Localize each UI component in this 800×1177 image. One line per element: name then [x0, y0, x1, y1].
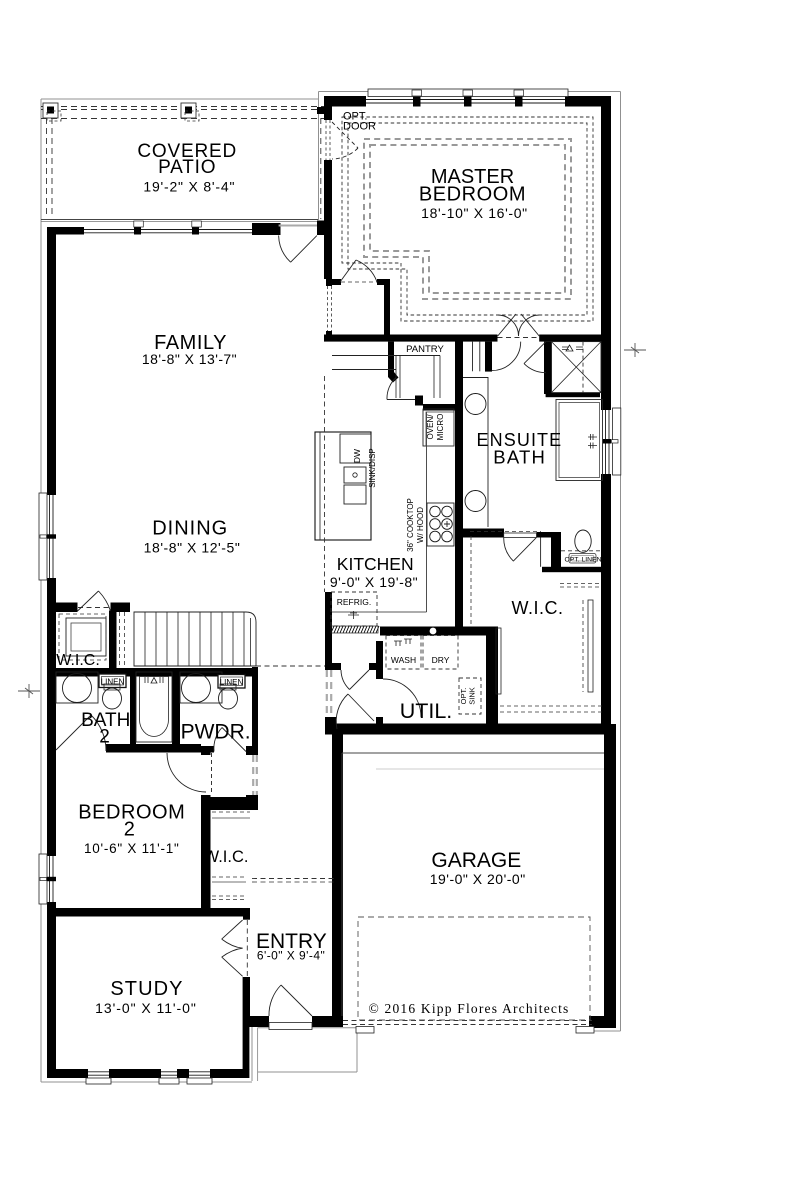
svg-text:6'-0" X 9'-4": 6'-0" X 9'-4"	[257, 949, 325, 963]
svg-text:PATIO: PATIO	[158, 157, 216, 178]
svg-text:W.I.C.: W.I.C.	[56, 652, 100, 669]
svg-text:MICRO: MICRO	[436, 414, 445, 441]
svg-text:WASH: WASH	[391, 655, 416, 665]
svg-text:19'-2" X 8'-4": 19'-2" X 8'-4"	[143, 179, 235, 195]
svg-text:© 2016 Kipp Flores Architects: © 2016 Kipp Flores Architects	[368, 1001, 569, 1016]
svg-text:2: 2	[99, 727, 110, 748]
svg-text:W/ HOOD: W/ HOOD	[416, 507, 425, 543]
svg-text:STUDY: STUDY	[110, 978, 183, 1000]
svg-text:9'-0" X 19'-8": 9'-0" X 19'-8"	[330, 574, 418, 590]
svg-text:DRY: DRY	[432, 655, 450, 665]
svg-text:OVEN/: OVEN/	[426, 414, 435, 440]
svg-text:DW: DW	[352, 449, 362, 463]
svg-text:DOOR: DOOR	[343, 121, 376, 133]
svg-text:18'-10" X 16'-0": 18'-10" X 16'-0"	[421, 205, 528, 221]
svg-text:W.I.C.: W.I.C.	[204, 848, 249, 866]
svg-text:W.I.C.: W.I.C.	[512, 598, 564, 618]
svg-text:SINK: SINK	[468, 687, 477, 705]
svg-text:UTIL.: UTIL.	[400, 699, 453, 723]
svg-text:DINING: DINING	[152, 517, 228, 539]
svg-text:SINK/DISP: SINK/DISP	[368, 448, 377, 488]
svg-text:BEDROOM: BEDROOM	[419, 184, 526, 206]
svg-text:18'-8" X 13'-7": 18'-8" X 13'-7"	[142, 351, 237, 367]
svg-text:PANTRY: PANTRY	[406, 344, 444, 355]
svg-text:OPT. LINEN: OPT. LINEN	[564, 556, 601, 563]
svg-text:GARAGE: GARAGE	[431, 849, 521, 872]
svg-text:19'-0" X 20'-0": 19'-0" X 20'-0"	[430, 871, 526, 887]
svg-text:13'-0" X 11'-0": 13'-0" X 11'-0"	[95, 1000, 197, 1016]
svg-text:36" COOKTOP: 36" COOKTOP	[406, 498, 415, 552]
svg-text:REFRIG.: REFRIG.	[337, 597, 371, 607]
svg-text:KITCHEN: KITCHEN	[337, 554, 414, 574]
svg-text:BATH: BATH	[493, 447, 546, 468]
svg-text:PWDR.: PWDR.	[181, 721, 251, 744]
svg-text:2: 2	[124, 819, 135, 841]
svg-text:10'-6" X 11'-1": 10'-6" X 11'-1"	[84, 841, 180, 856]
svg-text:18'-8" X 12'-5": 18'-8" X 12'-5"	[144, 540, 241, 556]
svg-text:LINEN: LINEN	[220, 678, 244, 687]
